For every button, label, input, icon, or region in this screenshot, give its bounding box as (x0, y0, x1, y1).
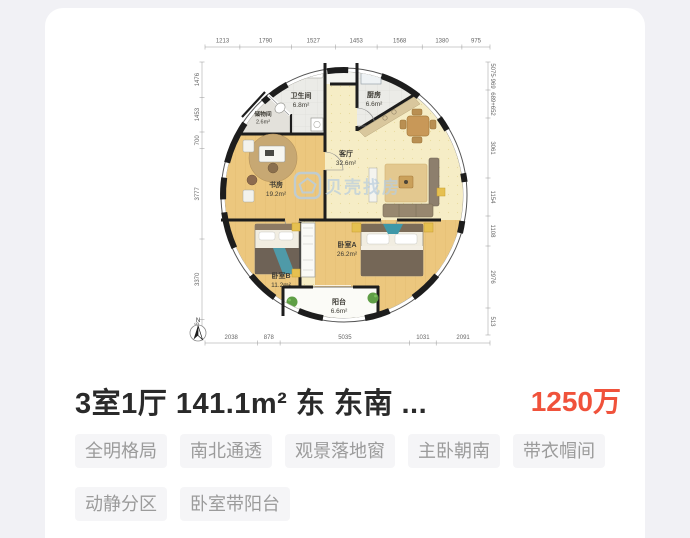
dim-label: 2038 (225, 335, 239, 341)
dim-label: 1108 (489, 225, 495, 239)
dining-table (407, 116, 429, 136)
plant-pot (247, 175, 257, 185)
dim-label: 1476 (195, 72, 201, 86)
sofa (429, 158, 439, 206)
watermark-text: 贝壳找房 (325, 177, 401, 197)
feature-tag: 观景落地窗 (285, 434, 395, 468)
feature-tags: 全明格局 南北通透 观景落地窗 主卧朝南 带衣帽间 动静分区 卧室带阳台 (75, 434, 627, 521)
room-name: 卧室A (337, 240, 356, 249)
dim-label: 1453 (350, 39, 364, 45)
listing-card[interactable]: 1213 1790 1527 1453 1568 1380 975 2038 8… (45, 8, 645, 538)
dim-label: 975 (471, 39, 482, 45)
feature-tag: 南北通透 (180, 434, 272, 468)
dim-label: 1453 (195, 107, 201, 121)
room-area: 26.2m² (337, 251, 358, 258)
feature-tag: 动静分区 (75, 487, 167, 521)
dim-label: 5035 (338, 335, 352, 341)
wardrobe (301, 223, 315, 277)
dim-label: 2976 (489, 270, 495, 284)
dim-label: 1213 (216, 39, 230, 45)
dim-label: 1790 (259, 39, 273, 45)
room-area: 2.6m² (256, 120, 270, 126)
dim-label: 1154 (489, 191, 495, 205)
room-area: 6.6m² (331, 308, 348, 315)
dim-label: 689+652 (489, 92, 495, 116)
dim-label: 513 (489, 316, 495, 327)
dim-label: 3370 (195, 272, 201, 286)
desk-chair (268, 163, 278, 173)
room-area: 11.2m² (271, 282, 292, 289)
feature-tag: 主卧朝南 (408, 434, 500, 468)
dim-label: 1568 (393, 39, 407, 45)
dim-label: 878 (264, 335, 275, 341)
dimension-chain-right: 5075·969 689+652 3061 1154 1108 2976 513 (486, 62, 496, 335)
floorplan-image[interactable]: 1213 1790 1527 1453 1568 1380 975 2038 8… (185, 30, 515, 360)
feature-tag: 卧室带阳台 (180, 487, 290, 521)
room-name: 储物间 (253, 110, 272, 118)
room-name: 书房 (269, 180, 283, 189)
compass-north-indicator: N (190, 318, 206, 341)
dim-label: 3777 (195, 186, 201, 200)
dimension-chain-top: 1213 1790 1527 1453 1568 1380 975 (205, 39, 490, 50)
room-area: 32.6m² (336, 160, 357, 167)
dimension-chain-left: 1476 1453 700 3777 3370 646 (195, 62, 205, 335)
room-area: 6.8m² (293, 102, 310, 109)
sofa-long (383, 204, 433, 217)
room-name: 厨房 (367, 90, 381, 99)
dim-label: 1031 (416, 335, 430, 341)
room-name: 客厅 (338, 149, 353, 158)
dim-label: 2091 (456, 335, 470, 341)
dim-label: 1527 (307, 39, 321, 45)
dim-label: 1380 (435, 39, 449, 45)
side-table (437, 188, 445, 196)
listing-summary: 3室1厅 141.1m² 东 东南 ... 1250万 (75, 380, 621, 422)
room-area: 19.2m² (266, 191, 287, 198)
room-name: 卧室B (271, 271, 290, 280)
room-name: 卫生间 (291, 91, 312, 100)
balcony-plant (368, 293, 379, 304)
listing-price: 1250万 (531, 380, 621, 420)
compass-n-label: N (196, 318, 200, 324)
dim-label: 700 (195, 135, 201, 146)
washing-machine (311, 118, 323, 131)
feature-tag: 全明格局 (75, 434, 167, 468)
listing-title: 3室1厅 141.1m² 东 东南 ... (75, 380, 427, 422)
room-area: 6.6m² (366, 101, 383, 108)
dim-label: 5075·969 (489, 63, 495, 89)
room-name: 阳台 (332, 297, 346, 306)
feature-tag: 带衣帽间 (513, 434, 605, 468)
dim-label: 3061 (489, 141, 495, 155)
floorplan-svg: 1213 1790 1527 1453 1568 1380 975 2038 8… (185, 30, 515, 360)
dimension-chain-bottom: 2038 878 5035 1031 2091 (205, 335, 490, 346)
